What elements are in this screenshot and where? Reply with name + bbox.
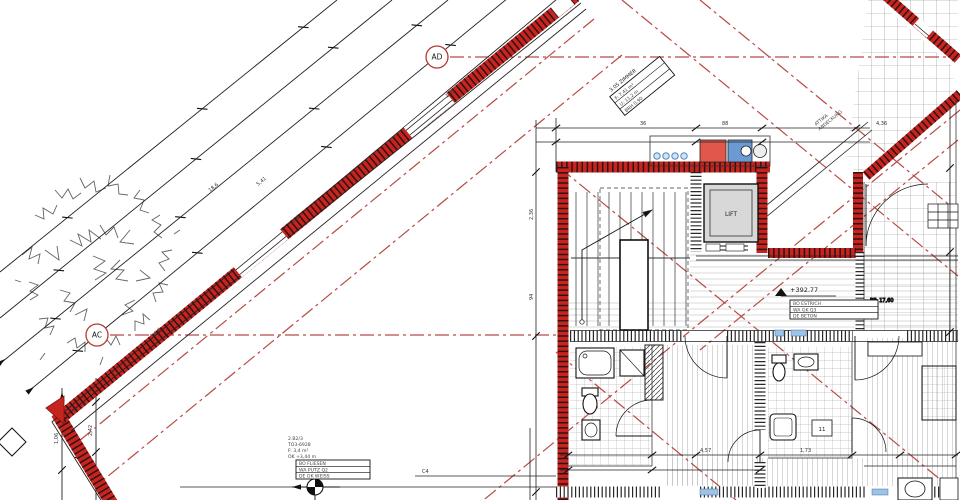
radiator-dot [663, 153, 669, 159]
glazing-mark [700, 489, 718, 495]
sink-basin [741, 146, 751, 156]
radiator-dot [681, 153, 687, 159]
wall-hatch [60, 0, 575, 500]
stair-stringer [620, 240, 648, 330]
glazing-mark [791, 330, 806, 336]
schedule-grid [928, 204, 958, 228]
marker-ad: AD [426, 46, 448, 68]
stove-fixture [700, 140, 726, 162]
floor-plan-screenshot: LIFT 11 BF: 17,60 [0, 0, 960, 500]
marker-ad-label: AD [432, 53, 443, 62]
label-line: F: 3,4 m² [288, 448, 309, 454]
basin [754, 145, 767, 158]
washbasin [905, 481, 925, 497]
vert-dim: 2,36 [529, 209, 535, 220]
left-dim: 1,06 [54, 433, 60, 444]
top-dim: 36 [640, 121, 646, 127]
corridor-label-table: BO ESTRICH WA GK Q3 DE BETON [790, 300, 878, 320]
glazing-mark [872, 489, 888, 495]
top-dim: 88 [722, 121, 728, 127]
label-line: TO3-6928 [287, 442, 311, 448]
glazing-mark [775, 330, 784, 336]
installation-shaft [645, 345, 663, 400]
corner-diamond-marker [0, 428, 26, 456]
axis-note: C4 [422, 469, 429, 475]
label-line: OK +3,44 m [288, 454, 317, 460]
level-value: +392.77 [790, 286, 818, 294]
site-dim: 5,41 [255, 176, 267, 188]
top-dim: 4,36 [876, 121, 887, 127]
site-dimension-lines [0, 0, 508, 500]
fixture-number: 11 [819, 427, 826, 433]
left-dim: 2,42 [88, 425, 94, 436]
radiator-dot [654, 153, 660, 159]
wardrobe [922, 366, 956, 420]
marker-ac: AC [86, 324, 108, 346]
floor-plan-canvas: LIFT 11 BF: 17,60 [0, 0, 960, 500]
label-row: WA GK Q3 [793, 307, 817, 313]
radiator-dot [672, 153, 678, 159]
elevator: LIFT [704, 184, 758, 251]
site-dim: 18,6 [207, 182, 219, 194]
label-line: 2.B2/3 [288, 436, 303, 442]
label-row: WA PUTZ Q2 [299, 467, 328, 473]
room-label-bottom: 2.B2/3 TO3-6928 F: 3,4 m² OK +3,44 m BO … [287, 436, 370, 480]
label-row: BO ESTRICH [793, 301, 821, 307]
marker-ac-label: AC [92, 331, 102, 340]
bottom-dim: 4,57 [700, 448, 711, 454]
label-row: BO FLIESEN [299, 461, 326, 467]
main-exterior-wall [46, 0, 586, 500]
bottom-dim: 1,73 [800, 448, 811, 454]
vert-dim: 94 [529, 294, 535, 300]
label-row: DE BETON [793, 314, 817, 320]
label-row: DE GK WEISS [299, 474, 330, 480]
elevator-label: LIFT [725, 211, 737, 218]
